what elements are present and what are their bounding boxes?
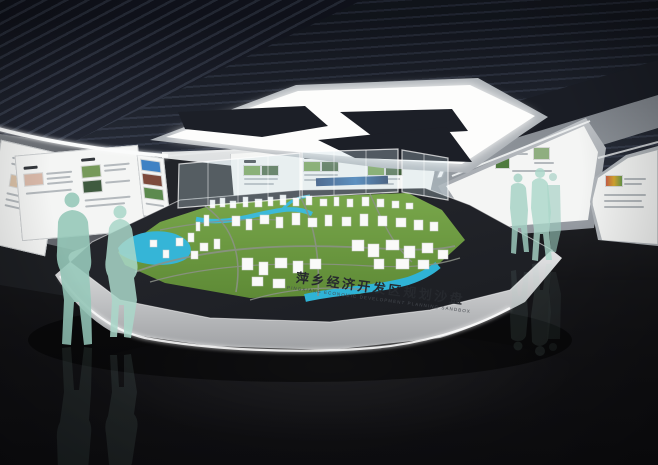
- scene-graphics: [0, 0, 658, 465]
- exhibition-hall-render: ❯: [0, 0, 658, 465]
- far-right-light-strip: [598, 142, 658, 158]
- left-wall-light-strip: [0, 128, 168, 156]
